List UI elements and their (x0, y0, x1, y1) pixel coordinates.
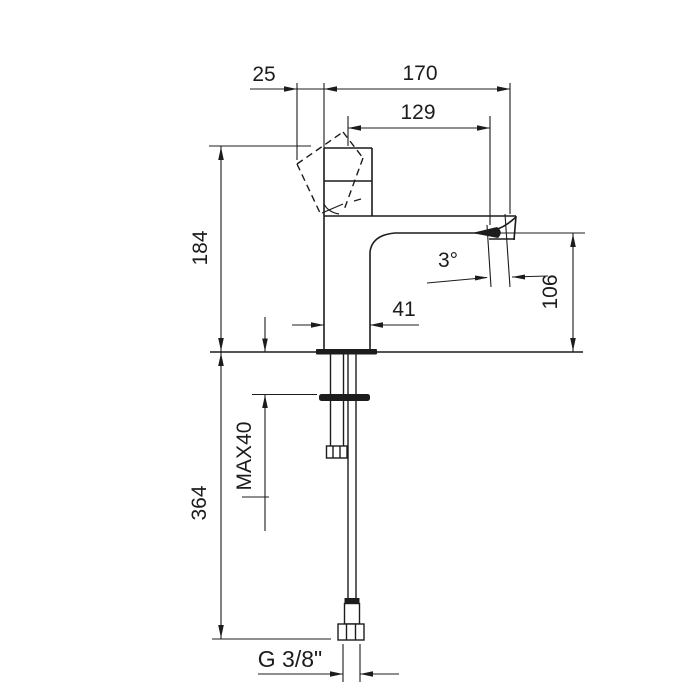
arrow-129-left (348, 125, 361, 131)
mounting-assembly (316, 349, 377, 640)
arrow-106-top (570, 234, 576, 247)
arrow-max40-bottom (262, 395, 268, 408)
dim-184-label: 184 (189, 230, 212, 265)
dim-angle-label: 3° (438, 249, 458, 272)
arrow-170-right (497, 86, 510, 92)
arrow-41-left (311, 322, 324, 328)
spout-tip-curve (497, 217, 516, 229)
stud-nut-body (327, 446, 348, 458)
thread-size-label: G 3/8" (258, 646, 322, 672)
hose-ferrule (345, 604, 360, 625)
hose-hex-nut (338, 624, 364, 640)
dim-106-label: 106 (539, 274, 562, 309)
faucet-outline (324, 148, 516, 350)
dim-364-label: 364 (188, 485, 211, 520)
arrow-angle-right (512, 275, 525, 280)
open-handle-front-edge (297, 164, 321, 215)
dim-170-label: 170 (402, 62, 437, 85)
arrow-max40-top (262, 339, 268, 352)
arrow-184-top (218, 147, 224, 160)
handle-open-position-dashed (297, 132, 363, 215)
mounting-washer (319, 394, 370, 401)
spout-underside-corner (370, 233, 395, 252)
extension-lines (209, 83, 585, 682)
aerator-outlet (472, 227, 501, 238)
arrow-25-left (284, 86, 297, 92)
ext-tip-angle-front (505, 214, 510, 287)
hose-end-fitting (338, 598, 364, 640)
dimension-labels: 25 170 129 184 3° 106 41 MAX40 364 G 3/8… (188, 62, 562, 672)
arrow-106-bottom (570, 338, 576, 351)
hose-crimp-band (345, 598, 360, 604)
open-handle-centerline-tick (354, 199, 361, 201)
dim-41-label: 41 (392, 298, 415, 321)
spout-end-face (514, 216, 516, 240)
dimension-lines (218, 86, 576, 677)
stud-end-nut (327, 446, 348, 458)
arrow-184-bottom (218, 338, 224, 351)
arrow-thread-left (330, 671, 343, 677)
base-plate (316, 349, 377, 355)
arrow-25-170-shared (324, 86, 337, 92)
arrow-364-bottom (218, 625, 224, 638)
arrow-129-right (477, 125, 490, 131)
handle (324, 148, 372, 216)
dim-25-label: 25 (252, 63, 275, 86)
dim-max40-label: MAX40 (233, 422, 256, 491)
technical-drawing: 25 170 129 184 3° 106 41 MAX40 364 G 3/8… (0, 0, 700, 700)
arrow-41-right (370, 322, 383, 328)
open-handle-rear-top-edge (343, 132, 363, 158)
dim-129-label: 129 (400, 101, 435, 124)
open-handle-rear-edge (344, 158, 363, 210)
arrow-thread-right (360, 671, 373, 677)
arrow-364-top (218, 353, 224, 366)
drawing-page: 25 170 129 184 3° 106 41 MAX40 364 G 3/8… (0, 0, 700, 700)
